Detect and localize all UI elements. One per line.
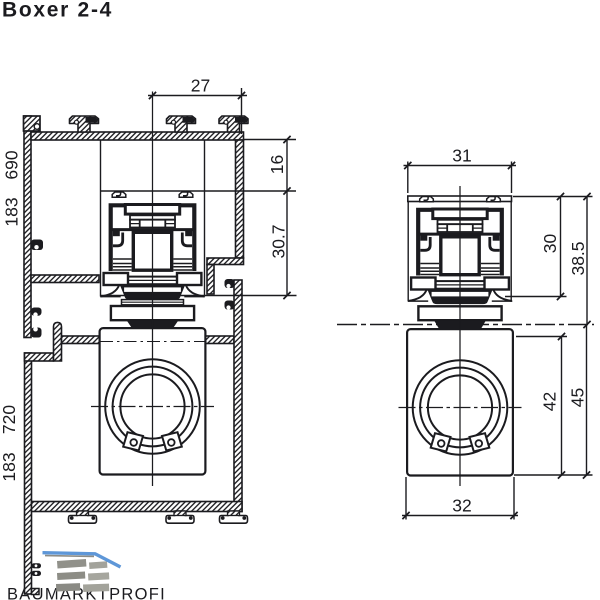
svg-text:38.5: 38.5: [568, 241, 588, 275]
svg-text:30.7: 30.7: [269, 224, 289, 258]
svg-text:183: 183: [0, 452, 19, 481]
svg-text:30: 30: [540, 234, 560, 254]
svg-text:45: 45: [568, 388, 588, 407]
svg-text:16: 16: [267, 155, 287, 174]
svg-text:42: 42: [540, 392, 560, 411]
svg-text:32: 32: [452, 496, 471, 516]
svg-text:27: 27: [191, 75, 210, 95]
svg-text:720: 720: [0, 405, 19, 434]
svg-text:31: 31: [452, 145, 471, 165]
svg-text:Boxer 2-4: Boxer 2-4: [2, 0, 113, 21]
svg-text:690: 690: [1, 150, 21, 179]
svg-text:183: 183: [1, 197, 21, 226]
